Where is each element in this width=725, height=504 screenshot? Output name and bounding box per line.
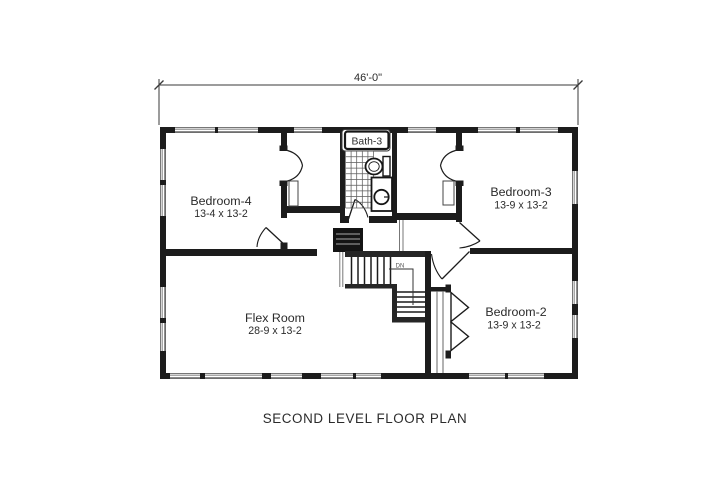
window-symbol [170,374,200,379]
stairwell-edge [400,220,404,251]
window-symbol [218,128,258,133]
window-symbol [508,374,544,379]
floor-plan-page: 46'-0" [0,0,725,504]
bathroom: Bath-3 [342,130,392,212]
window-symbol [271,374,302,379]
window-symbol [161,287,166,318]
plan-caption: SECOND LEVEL FLOOR PLAN [263,411,468,426]
window-symbol [478,128,516,133]
door-closet-bedroom4 [280,146,303,187]
window-symbol [205,374,262,379]
window-symbol [573,171,578,204]
bedroom4-size: 13-4 x 13-2 [194,208,248,220]
overall-dimension [155,79,583,125]
bedroom2-closet [437,285,469,374]
window-symbol [321,374,353,379]
vanity-sink [372,178,393,212]
overall-dimension-label: 46'-0" [354,72,382,84]
window-symbol [520,128,558,133]
flex-name: Flex Room [245,311,305,325]
room-label-bath3: Bath-3 [351,136,382,147]
toilet [366,157,391,177]
window-symbol [573,281,578,304]
stair-railing [340,252,343,287]
window-symbols-bottom [170,374,544,379]
stair-direction-label: DN [396,264,405,270]
door-closet-bedroom3 [441,146,464,187]
window-symbol [294,128,322,133]
room-label-flex: Flex Room 28-9 x 13-2 [245,311,305,337]
window-symbol [408,128,436,133]
room-label-bedroom2: Bedroom-2 13-9 x 13-2 [485,305,546,332]
door-bedroom2 [432,252,470,280]
door-bedroom3 [460,223,481,249]
window-symbol [161,149,166,180]
room-label-bedroom3: Bedroom-3 13-9 x 13-2 [490,185,551,212]
window-symbol [175,128,215,133]
window-symbol [573,315,578,338]
bedroom3-size: 13-9 x 13-2 [494,200,548,212]
floor-plan-drawing: 46'-0" [0,0,725,504]
bedroom2-name: Bedroom-2 [485,305,546,319]
chimney-chase [333,228,363,252]
room-label-bedroom4: Bedroom-4 13-4 x 13-2 [190,194,251,220]
door-bedroom4 [257,228,288,250]
window-symbol [469,374,505,379]
window-symbol [161,185,166,216]
double-door-chevrons [451,293,469,351]
window-symbol [356,374,381,379]
flex-size: 28-9 x 13-2 [248,325,302,337]
bedroom4-name: Bedroom-4 [190,194,251,208]
bedroom2-size: 13-9 x 13-2 [487,320,541,332]
bedroom3-name: Bedroom-3 [490,185,551,199]
window-symbol [161,323,166,351]
